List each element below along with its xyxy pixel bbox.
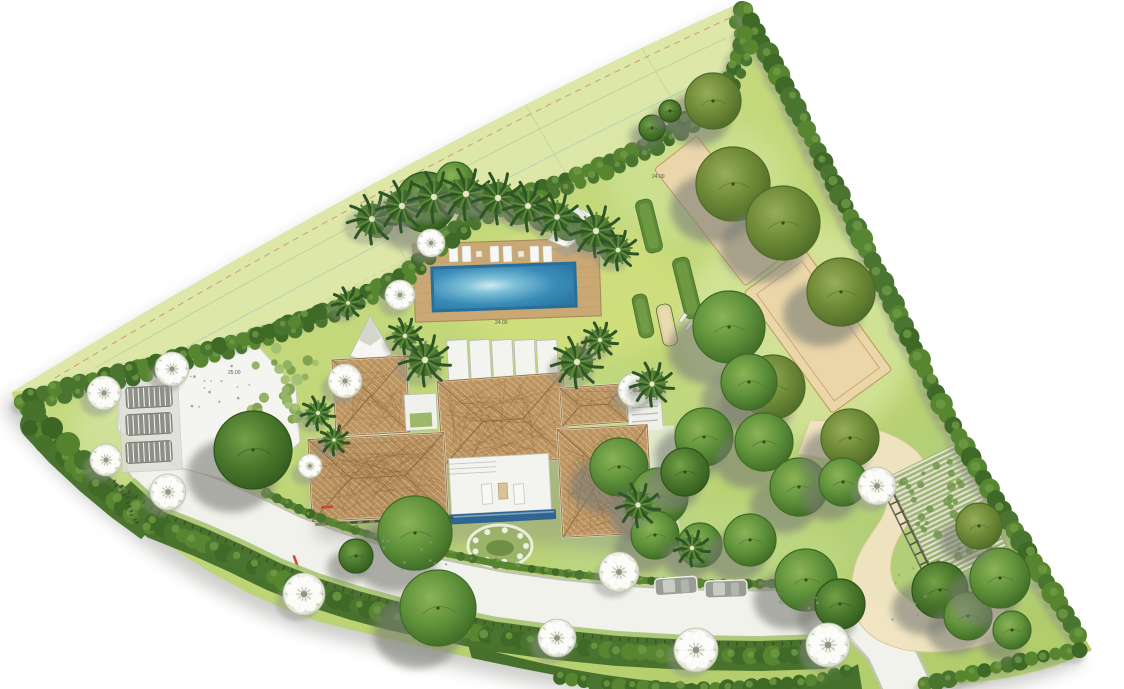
svg-text:24.00: 24.00 [495,320,508,326]
svg-text:25.00: 25.00 [228,370,241,376]
svg-text:24.00: 24.00 [652,174,665,180]
